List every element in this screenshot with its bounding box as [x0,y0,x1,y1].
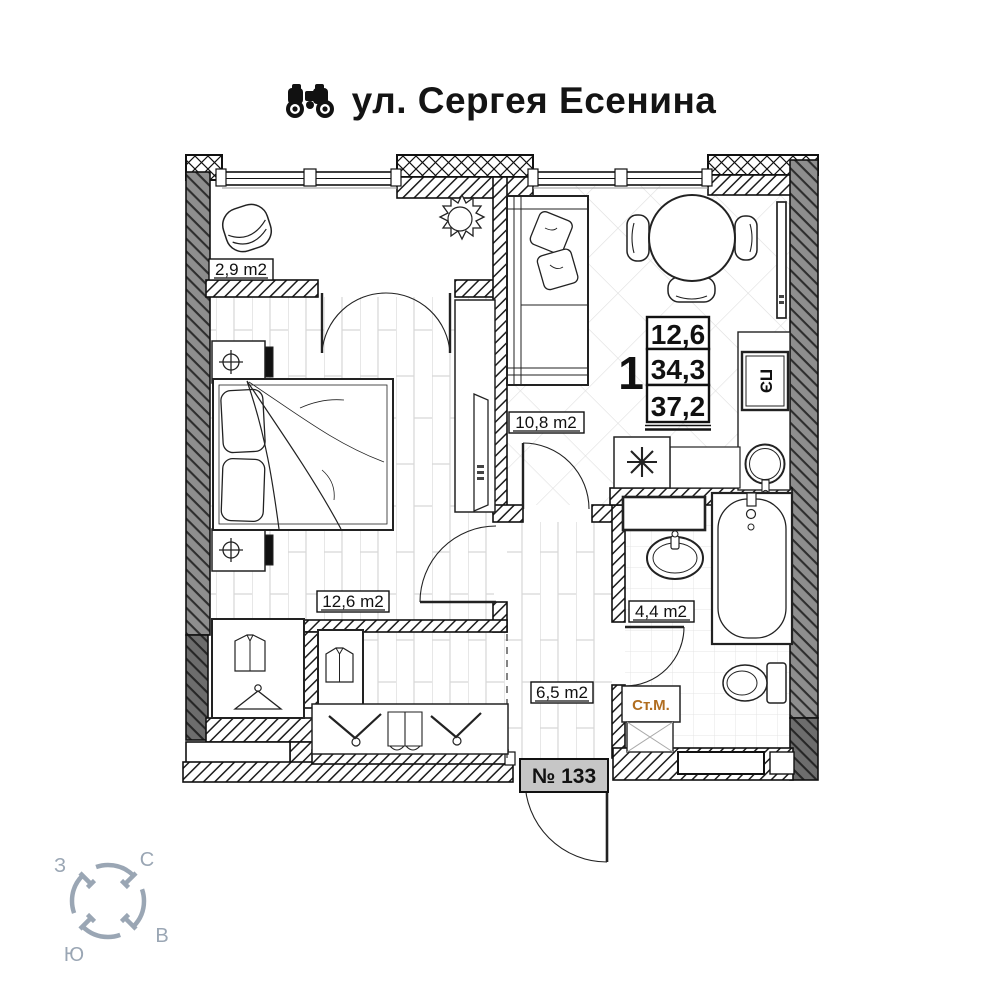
kitchen-area-label: 10,8 m2 [509,412,584,433]
interior-wall [303,632,318,708]
hallway-floor [507,522,612,762]
exterior-wall-bottom [206,718,314,742]
exterior-wall-bottom [183,762,513,782]
toilet [723,663,786,703]
wall-inset [678,752,764,774]
interior-wall [493,505,523,522]
svg-text:4,4 m2: 4,4 m2 [635,602,687,621]
apartment-number: № 133 [532,765,596,788]
hanger-strip [312,704,508,754]
mirror-cabinet [623,497,705,530]
fridge [614,437,670,488]
stove-unit: ПЭ [742,352,788,410]
compass-tick-sw [80,915,95,930]
interior-wall [397,177,533,198]
wardrobe [212,619,304,718]
nightstand [212,341,273,383]
dining-chair [735,216,757,260]
entrance: № 133 [520,759,608,862]
living-area: 12,6 [651,319,706,350]
living-window [528,169,712,188]
tv-cabinet [455,300,495,512]
balcony-area-label: 2,9 m2 [209,259,273,280]
svg-text:10,8 m2: 10,8 m2 [515,413,576,432]
compass-east: В [155,925,168,947]
exterior-wall-left-lower [186,635,208,740]
bedroom-area-label: 12,6 m2 [317,591,389,612]
hall-wardrobe [318,630,363,707]
compass-north: С [140,849,154,871]
svg-text:2,9 m2: 2,9 m2 [215,260,267,279]
balcony-window [216,169,401,188]
hallway-area-label: 6,5 m2 [531,682,593,703]
exterior-wall-right [790,160,818,718]
svg-text:12,6 m2: 12,6 m2 [322,592,383,611]
rooms-count: 1 [618,347,644,399]
tv-living [777,202,786,318]
compass-tick-se [122,915,137,930]
sofa [507,196,588,385]
exterior-wall-block [397,155,533,177]
wall-inset [770,752,794,774]
compass-rose: С В Ю З [40,835,185,975]
binoculars-icon [284,83,336,119]
compass-south: Ю [64,944,84,966]
washing-machine-label: Ст.М. [632,697,670,714]
bathroom-area-label: 4,4 m2 [629,601,694,622]
compass-tick-nw [80,873,95,888]
street-name: ул. Сергея Есенина [352,80,717,122]
dining-table [649,195,735,281]
floorplan-page: ул. Сергея Есенина [0,0,1000,1000]
compass-tick-ne [122,873,137,888]
area-without-balcony: 34,3 [651,354,706,385]
interior-wall [206,280,318,297]
plan-title: ул. Сергея Есенина [0,80,1000,122]
stove-label: ПЭ [757,369,776,393]
total-area: 37,2 [651,391,706,422]
bathtub [712,493,792,644]
dining-chair [627,215,649,261]
nightstand [212,529,273,571]
double-bed [213,379,393,530]
compass-west: З [54,855,66,877]
washing-machine: Ст.М. [622,686,680,722]
ventilation-shaft [627,722,673,752]
floor-plan: ПЭ [180,150,825,865]
svg-text:6,5 m2: 6,5 m2 [536,683,588,702]
exterior-wall-left [186,172,210,635]
interior-wall [708,175,792,195]
exterior-wall-bottom [290,742,314,764]
